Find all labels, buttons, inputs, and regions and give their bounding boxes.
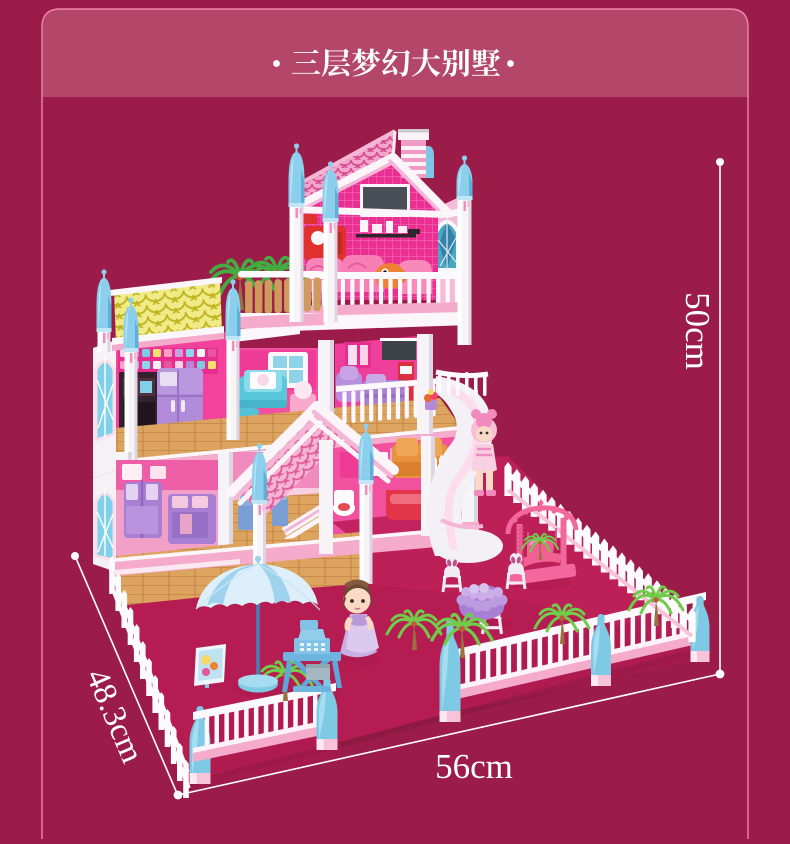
svg-text:50cm: 50cm	[678, 292, 717, 370]
svg-text:56cm: 56cm	[435, 747, 513, 786]
